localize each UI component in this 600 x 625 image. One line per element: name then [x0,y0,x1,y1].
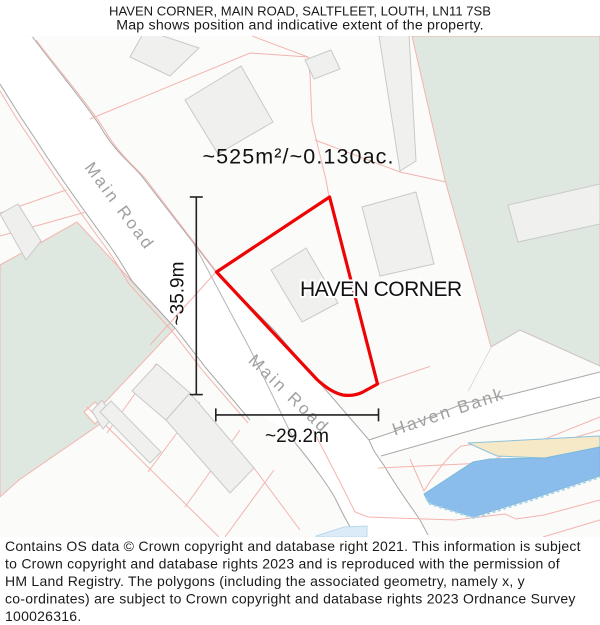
svg-text:HAVEN CORNER: HAVEN CORNER [300,278,462,301]
svg-text:to Crown copyright and databas: to Crown copyright and database rights 2… [5,556,560,572]
svg-text:~29.2m: ~29.2m [265,426,329,447]
svg-text:HAVEN CORNER, MAIN ROAD, SALTF: HAVEN CORNER, MAIN ROAD, SALTFLEET, LOUT… [109,4,491,19]
svg-text:Map shows position and indicat: Map shows position and indicative extent… [116,18,484,34]
svg-text:~35.9m: ~35.9m [168,262,189,326]
svg-text:100026316.: 100026316. [5,608,81,624]
svg-text:HM Land Registry. The polygons: HM Land Registry. The polygons (includin… [5,573,525,589]
svg-text:Contains OS data © Crown copyr: Contains OS data © Crown copyright and d… [5,538,581,554]
svg-text:co-ordinates) are subject to C: co-ordinates) are subject to Crown copyr… [5,591,576,607]
svg-text:~525m²/~0.130ac.: ~525m²/~0.130ac. [202,145,394,169]
